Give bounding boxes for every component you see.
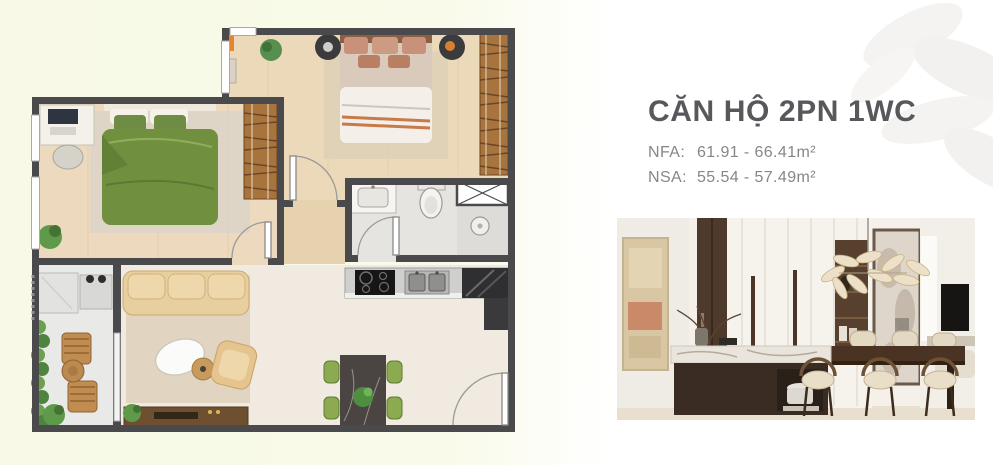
floor-plan-figure — [28, 25, 518, 435]
wall-sconce — [793, 270, 797, 358]
shower — [471, 217, 489, 235]
unit-brochure-page: CĂN HỘ 2PN 1WC NFA: 61.91 - 66.41m² NSA:… — [0, 0, 993, 465]
spec-row-nfa: NFA: 61.91 - 66.41m² — [648, 144, 968, 162]
nsa-label: NSA: — [648, 169, 697, 187]
nsa-value: 55.54 - 57.49m² — [697, 169, 816, 187]
tv-console — [123, 404, 248, 426]
back-dining-chairs — [850, 331, 956, 348]
nfa-label: NFA: — [648, 144, 697, 162]
unit-info-panel: CĂN HỘ 2PN 1WC NFA: 61.91 - 66.41m² NSA:… — [648, 96, 968, 194]
wardrobe-bedroom-1 — [244, 103, 277, 199]
unit-title: CĂN HỘ 2PN 1WC — [648, 96, 968, 128]
interior-photo — [617, 218, 975, 420]
nfa-value: 61.91 - 66.41m² — [697, 144, 816, 162]
living-room — [123, 271, 259, 426]
cooktop — [355, 270, 395, 295]
wall-artwork — [623, 238, 668, 370]
sink-vanity — [350, 183, 396, 213]
double-sink — [405, 271, 449, 294]
tv-screen — [941, 284, 969, 331]
spec-row-nsa: NSA: 55.54 - 57.49m² — [648, 169, 968, 187]
sofa — [123, 271, 249, 315]
wardrobe-bedroom-2 — [480, 33, 508, 175]
